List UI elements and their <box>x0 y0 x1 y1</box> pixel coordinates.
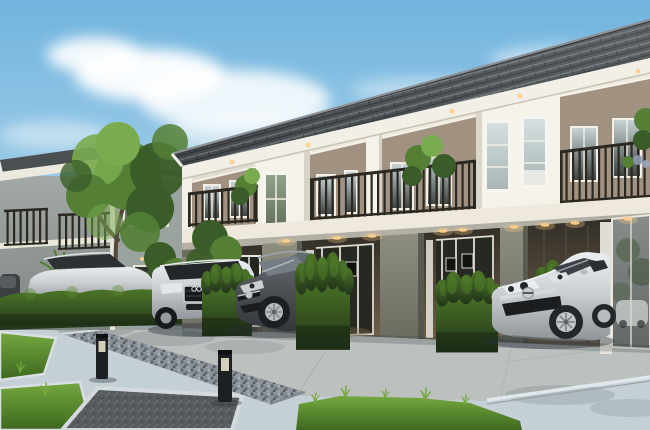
bay-window <box>487 123 508 189</box>
glass-reflection <box>616 238 640 262</box>
scene-canvas <box>0 0 650 430</box>
eave-light <box>230 160 235 165</box>
bollard-lamp-panel <box>99 341 106 352</box>
side-mirror <box>580 270 588 275</box>
picture-frame <box>446 258 456 271</box>
downlight <box>276 238 296 246</box>
downlight <box>565 220 585 228</box>
curtain <box>426 240 433 338</box>
downlight <box>362 233 382 241</box>
balcony-railing <box>560 141 650 204</box>
badge <box>246 292 253 299</box>
downlight <box>140 257 144 261</box>
picture-frame <box>462 254 473 268</box>
downlight <box>433 228 453 236</box>
downlight <box>453 227 473 235</box>
downlight <box>535 222 555 230</box>
flowers <box>633 155 643 165</box>
hedge-block <box>295 252 354 350</box>
downlight <box>504 224 524 232</box>
downlight <box>327 235 347 243</box>
townhouse-rendering <box>0 0 650 430</box>
downlight <box>618 216 638 224</box>
pillar <box>380 233 424 339</box>
glass-wall <box>611 215 650 349</box>
